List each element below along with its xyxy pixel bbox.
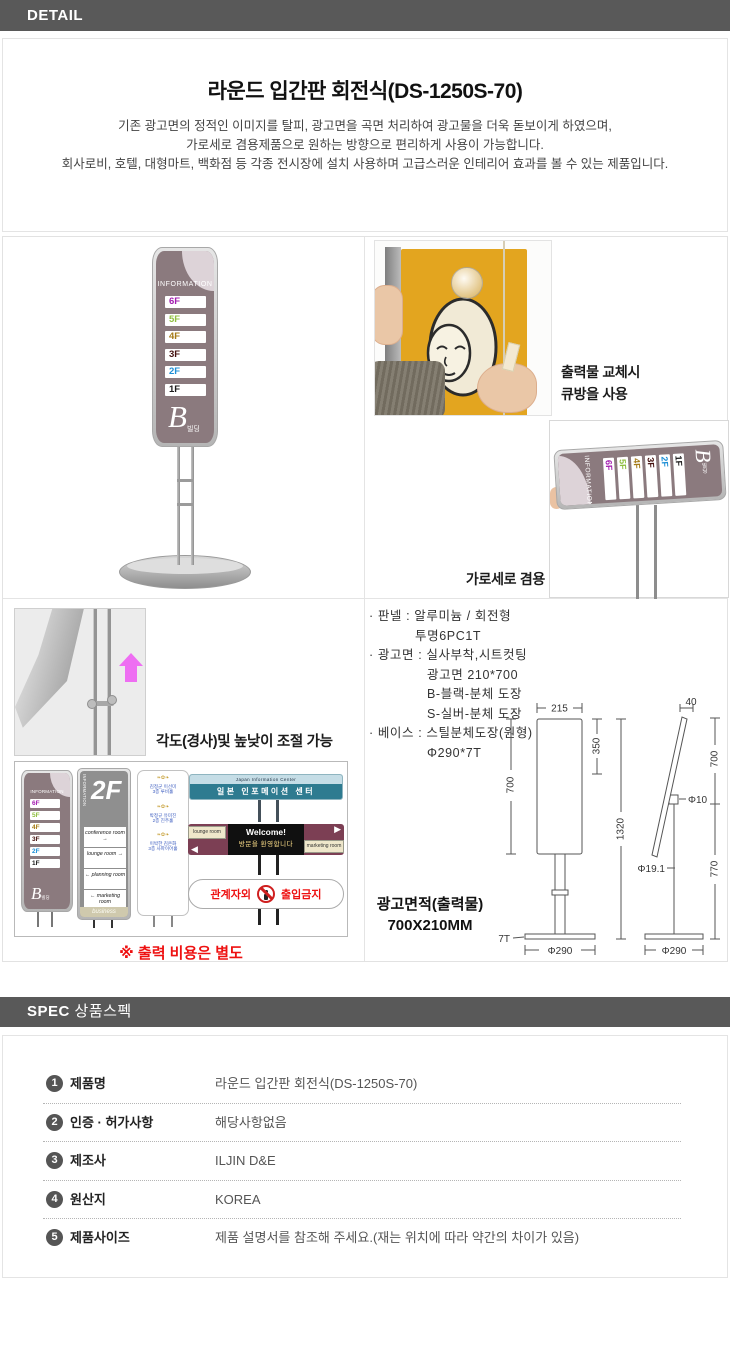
directory-row: lounge room →	[84, 848, 126, 868]
spec-row-label: 원산지	[70, 1181, 106, 1219]
mini-floor-strip: 3F	[30, 835, 60, 844]
dim-side-pole-dia: Φ19.1	[638, 864, 666, 875]
pole-crossbar	[177, 503, 194, 506]
directory-floor-label: 2F	[91, 775, 121, 806]
spec-row-number: 3	[46, 1152, 63, 1169]
horizontal-board: INFORMATION 6F 5F 4F 3F 2F 1F B빌딩	[558, 444, 723, 506]
spec-header-bar: SPEC 상품스펙	[0, 997, 730, 1027]
sign-base-top	[127, 558, 243, 574]
floor-label: 2F	[659, 456, 670, 467]
left-hand	[374, 285, 403, 345]
building-suffix: 빌딩	[187, 426, 200, 433]
example-pole-stub	[171, 916, 173, 927]
print-replace-photo	[374, 240, 552, 416]
spec-row-value: KOREA	[215, 1181, 261, 1219]
example-sign-building: INFORMATION 6F 5F 4F 3F 2F 1F B빌딩	[21, 770, 73, 912]
hall-ornament: ❧✿❧	[138, 832, 188, 838]
spec-row-value: 라운드 입간판 회전식(DS-1250S-70)	[215, 1065, 417, 1103]
print-examples-box: INFORMATION 6F 5F 4F 3F 2F 1F B빌딩	[14, 761, 348, 937]
japan-sign-main: 일본 인포메이션 센터	[190, 784, 342, 799]
mini-floor-strip: 1F	[30, 859, 60, 868]
spec-row: 3 제조사 ILJIN D&E	[43, 1142, 681, 1181]
building-letter: B	[31, 884, 41, 903]
sign-board: INFORMATION 6F 5F 4F 3F 2F 1F B빌딩	[156, 251, 214, 443]
dim-front-width: 215	[551, 704, 568, 715]
hfloor-strip: 2F	[659, 454, 673, 497]
building-label: B빌딩	[168, 399, 200, 435]
spec-line: 투명6PC1T	[369, 627, 533, 647]
product-title: 라운드 입간판 회전식(DS-1250S-70)	[3, 75, 727, 105]
product-detail-page: DETAIL 라운드 입간판 회전식(DS-1250S-70) 기존 광고면의 …	[0, 0, 730, 1345]
horizontal-board-frame: INFORMATION 6F 5F 4F 3F 2F 1F B빌딩	[553, 440, 726, 510]
dim-front-base-dia: Φ290	[548, 946, 573, 957]
example-sign-directory-body: INFORMATION 2F conference room → lounge …	[80, 771, 128, 917]
spec-row-label: 제조사	[70, 1142, 106, 1180]
directory-info-label: INFORMATION	[82, 774, 87, 822]
spec-line: · 광고면 : 실사부착,시트컷팅	[369, 646, 533, 666]
example-pole-stub	[93, 920, 95, 928]
spec-row-number: 5	[46, 1229, 63, 1246]
welcome-line1: Welcome!	[228, 827, 304, 837]
directory-footer: business	[80, 907, 128, 917]
welcome-center: Welcome! 방문을 환영합니다	[228, 824, 304, 855]
intro-panel: 라운드 입간판 회전식(DS-1250S-70) 기존 광고면의 정적인 이미지…	[2, 38, 728, 232]
ad-area-label: 광고면적(출력물) 700X210MM	[369, 894, 491, 936]
spec-table-panel: 1 제품명 라운드 입간판 회전식(DS-1250S-70) 2 인증 · 허가…	[2, 1035, 728, 1278]
floor-label: 4F	[631, 458, 642, 469]
description-line-1: 기존 광고면의 정적인 이미지를 탈피, 광고면을 곡면 처리하여 광고물을 더…	[3, 117, 727, 136]
description-line-2: 가로세로 겸용제품으로 원하는 방향으로 편리하게 사용이 가능합니다.	[3, 136, 727, 155]
spec-header-label-bold: SPEC	[27, 1003, 70, 1020]
floor-label: 3F	[30, 835, 60, 844]
print-cost-note: ※ 출력 비용은 별도	[14, 942, 348, 963]
mini-floor-strip: 4F	[30, 823, 60, 832]
chevron-left-icon: ◀	[191, 844, 198, 855]
spec-row-label: 제품명	[70, 1065, 106, 1103]
dim-front-panel-height: 700	[506, 776, 517, 793]
adjust-caption: 각도(경사)및 높낮이 조절 가능	[156, 730, 333, 751]
spec-row: 2 인증 · 허가사항 해당사항없음	[43, 1104, 681, 1143]
spec-row-number: 1	[46, 1075, 63, 1092]
example-pole-stub	[276, 909, 279, 925]
spec-line: 광고면 210*700	[369, 666, 533, 686]
ad-area-line2: 700X210MM	[369, 915, 491, 936]
detail-header-label: DETAIL	[27, 7, 83, 24]
ad-area-line1: 광고면적(출력물)	[369, 894, 491, 915]
detail-header-bar: DETAIL	[0, 0, 730, 31]
spec-row-value: 해당사항없음	[215, 1104, 287, 1142]
mini-floor-strip: 5F	[30, 811, 60, 820]
floor-label: 5F	[165, 314, 206, 326]
building-letter: B	[168, 399, 187, 434]
dim-front-total: 1320	[616, 817, 627, 840]
floor-label: 5F	[618, 459, 629, 470]
welcome-left-tab: lounge room	[188, 826, 226, 839]
hfloor-strip: 1F	[673, 453, 687, 496]
building-suffix: 빌딩	[41, 895, 49, 900]
dim-side-top: 40	[685, 697, 697, 708]
sign-board-frame: INFORMATION 6F 5F 4F 3F 2F 1F B빌딩	[152, 247, 218, 447]
dim-side-upper: 700	[710, 750, 721, 767]
hfloor-strip: 3F	[645, 455, 659, 498]
clamp-knob	[87, 699, 97, 709]
image-grid-panel: INFORMATION 6F 5F 4F 3F 2F 1F B빌딩	[2, 236, 728, 962]
japan-sign-top: Japan Information Center	[190, 775, 342, 784]
example-sign-hall: ❧✿❧ 김정군 이선미 3층 루비홀 ❧✿❧ 박정규 유미진 2층 진주홀 ❧✿…	[137, 770, 189, 916]
product-description: 기존 광고면의 정적인 이미지를 탈피, 광고면을 곡면 처리하여 광고물을 더…	[3, 117, 727, 174]
hfloor-strip: 5F	[617, 457, 631, 500]
sweater-arm	[374, 361, 445, 416]
suction-cup	[451, 267, 483, 299]
hsign-pole-left	[636, 505, 639, 599]
chevron-right-icon: ▶	[334, 824, 341, 835]
floor-label: 1F	[673, 455, 684, 466]
floor-label: 2F	[30, 847, 60, 856]
replace-caption: 출력물 교체시 큐방을 사용	[561, 361, 640, 405]
usage-cell: 출력물 교체시 큐방을 사용 INFORMATION 6F 5F 4F 3F	[365, 237, 729, 598]
front-view: 215 700 350 1320 7T	[498, 703, 626, 957]
mini-floor-strip: 2F	[30, 847, 60, 856]
floor-label: 5F	[30, 811, 60, 820]
hsign-building-label: B빌딩	[690, 448, 717, 474]
floor-label: 4F	[30, 823, 60, 832]
example-pole-stub	[258, 800, 261, 822]
example-sign-noentry: 관계자외 출입금지	[188, 879, 344, 909]
no-entry-icon	[257, 885, 275, 903]
welcome-line2: 방문을 환영합니다	[228, 838, 304, 848]
hsign-pole-right	[654, 505, 657, 599]
spec-row-label: 인증 · 허가사항	[70, 1104, 153, 1142]
floor-strip: 3F	[165, 349, 206, 361]
floor-label: 3F	[645, 457, 656, 468]
example-pole-stub	[153, 916, 155, 927]
example-pole-stub	[51, 912, 53, 927]
building-suffix: 빌딩	[700, 462, 707, 473]
floor-strip: 6F	[165, 296, 206, 308]
mini-info-label: INFORMATION	[24, 789, 70, 794]
welcome-right-tab: marketing room	[304, 840, 344, 853]
floor-label: 1F	[165, 384, 206, 396]
orientation-caption: 가로세로 겸용	[425, 569, 545, 589]
clamp-knob	[107, 695, 117, 705]
up-arrow-stem	[125, 665, 137, 682]
noentry-left-text: 관계자외	[211, 886, 251, 902]
spec-row: 1 제품명 라운드 입간판 회전식(DS-1250S-70)	[43, 1065, 681, 1104]
floor-label: 3F	[165, 349, 206, 361]
dim-front-upper: 350	[592, 737, 603, 754]
spec-row: 4 원산지 KOREA	[43, 1181, 681, 1220]
floor-label: 4F	[165, 331, 206, 343]
dimension-diagram: 215 700 350 1320 7T	[479, 694, 729, 962]
example-sign-building-body: INFORMATION 6F 5F 4F 3F 2F 1F B빌딩	[24, 773, 70, 909]
dim-side-lower: 770	[710, 860, 721, 877]
floor-label: 1F	[30, 859, 60, 868]
spec-row-label: 제품사이즈	[70, 1219, 130, 1257]
hall-ornament: ❧✿❧	[138, 804, 188, 810]
hfloor-strip: 6F	[603, 458, 617, 501]
dim-side-base-dia: Φ290	[662, 946, 687, 957]
spec-table: 1 제품명 라운드 입간판 회전식(DS-1250S-70) 2 인증 · 허가…	[43, 1065, 681, 1257]
replace-caption-line2: 큐방을 사용	[561, 383, 640, 405]
hall-row: 3층 루비홀	[138, 789, 188, 794]
noentry-right-text: 출입금지	[281, 886, 321, 902]
example-pole-stub	[258, 909, 261, 925]
spec-row-number: 2	[46, 1114, 63, 1131]
floor-label: 2F	[165, 366, 206, 378]
example-pole-stub	[258, 855, 261, 875]
dim-side-pivot-dia: Φ10	[688, 795, 708, 806]
hall-ornament: ❧✿❧	[138, 775, 188, 781]
example-sign-welcome: Welcome! 방문을 환영합니다 lounge room marketing…	[188, 824, 344, 855]
mini-floor-strip: 6F	[30, 799, 60, 808]
example-pole-stub	[276, 800, 279, 822]
closeup-pole	[107, 609, 111, 756]
mini-building-label: B빌딩	[31, 884, 50, 904]
floor-strip: 1F	[165, 384, 206, 396]
standing-sign-photo: INFORMATION 6F 5F 4F 3F 2F 1F B빌딩	[3, 237, 364, 598]
description-line-3: 회사로비, 호텔, 대형마트, 백화점 등 각종 전시장에 설치 사용하며 고급…	[3, 155, 727, 174]
example-pole-stub	[111, 920, 113, 928]
floor-label: 6F	[165, 296, 206, 308]
spec-header-label: 상품스펙	[75, 1003, 132, 1020]
dim-front-base-thickness: 7T	[498, 934, 510, 945]
pole-crossbar	[177, 479, 194, 482]
hfloor-strip: 4F	[631, 456, 645, 499]
spec-line: · 판넬 : 알루미늄 / 회전형	[369, 607, 533, 627]
example-sign-directory: INFORMATION 2F conference room → lounge …	[77, 768, 131, 920]
adjust-cell: 각도(경사)및 높낮이 조절 가능 INFORMATION 6F 5F 4F 3…	[3, 599, 364, 963]
adjust-closeup-photo	[14, 608, 146, 756]
floor-label: 6F	[604, 460, 615, 471]
example-pole-stub	[37, 912, 39, 927]
hall-row: 2층 진주홀	[138, 818, 188, 823]
spec-diagram-cell: · 판넬 : 알루미늄 / 회전형 투명6PC1T · 광고면 : 실사부착,시…	[365, 599, 729, 963]
floor-label: 6F	[30, 799, 60, 808]
sign-info-label: INFORMATION	[156, 281, 214, 288]
floor-strip: 4F	[165, 331, 206, 343]
closeup-pole	[93, 609, 97, 756]
spec-row-number: 4	[46, 1191, 63, 1208]
hall-row: 3층 사파이어홀	[138, 846, 188, 851]
horizontal-sign-photo: INFORMATION 6F 5F 4F 3F 2F 1F B빌딩	[549, 420, 729, 598]
example-pole-stub	[276, 855, 279, 875]
floor-strip: 5F	[165, 314, 206, 326]
example-sign-japan: Japan Information Center 일본 인포메이션 센터	[189, 774, 343, 800]
spec-row-value: 제품 설명서를 참조해 주세요.(재는 위치에 따라 약간의 차이가 있음)	[215, 1219, 579, 1257]
floor-strip: 2F	[165, 366, 206, 378]
side-view: 40 700 770 Φ10 Φ19.1	[638, 697, 721, 957]
replace-caption-line1: 출력물 교체시	[561, 361, 640, 383]
spec-row: 5 제품사이즈 제품 설명서를 참조해 주세요.(재는 위치에 따라 약간의 차…	[43, 1219, 681, 1257]
directory-row: conference room →	[84, 827, 126, 847]
spec-row-value: ILJIN D&E	[215, 1142, 276, 1180]
directory-row: ← planning room	[84, 869, 126, 889]
